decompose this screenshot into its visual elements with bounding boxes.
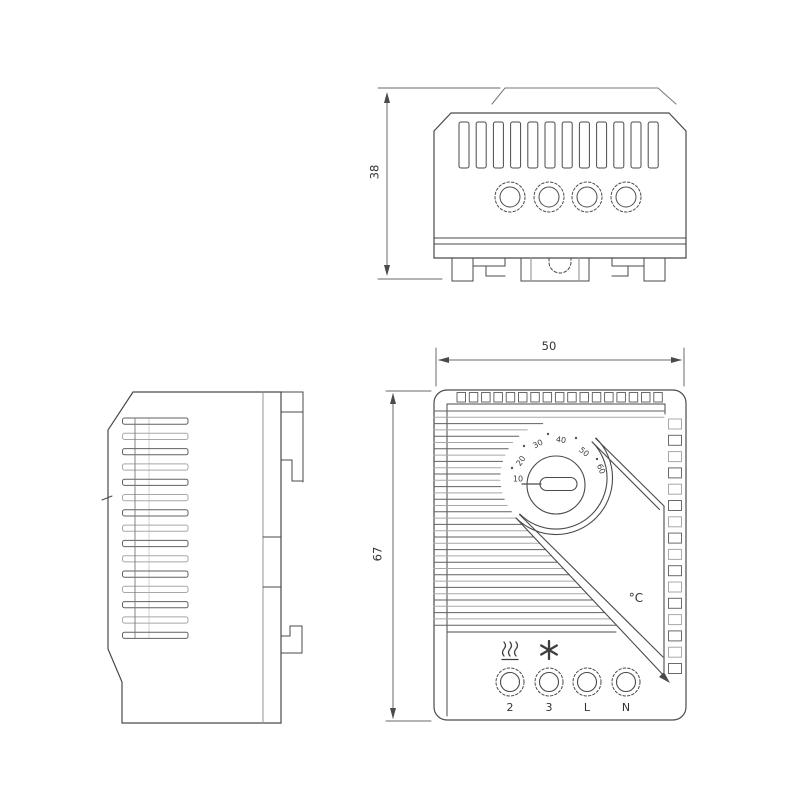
terminal-screw [539,187,559,207]
celsius-unit-label: °C [629,591,643,605]
right-vent-slot [669,517,682,527]
comb-slot [531,393,540,403]
terminal-screw [577,187,597,207]
side-vent-slot [123,617,189,623]
dial-bezel-inner-arc [520,442,607,529]
left-foot [486,266,505,276]
comb-slot [592,393,601,403]
left-foot [473,258,505,266]
middle-foot-notch [549,258,571,273]
comb-slot [617,393,626,403]
dimension-arrow-icon [390,708,396,719]
right-foot [612,258,644,266]
back-plate-outline [492,88,676,104]
comb-slot [482,393,491,403]
top-vent-slot [528,122,538,168]
side-vent-slot [123,540,189,546]
top-vent-slot [545,122,555,168]
top-vent-slot [511,122,521,168]
dial-pointer-handle[interactable] [540,478,577,491]
dial-scale-dot [596,458,598,460]
side-vent-slot [123,495,189,501]
side-vent-slot [123,632,189,638]
right-vent-slot [669,468,682,478]
top-vent-slot [648,122,658,168]
front-right-vent-slots [669,419,682,674]
left-notch [102,496,112,500]
terminal-screw[interactable] [578,673,597,692]
dial-bezel-lower-edge [516,518,666,678]
side-vent-slot [123,556,189,562]
dimension-arrow-icon [438,357,449,363]
top-vent-slot [476,122,486,168]
side-vent-slot [123,586,189,592]
right-vent-slot [669,435,682,445]
din-clip-top [281,392,303,482]
right-foot [612,266,628,276]
right-vent-slot [669,452,682,462]
comb-slot [642,393,651,403]
din-clip-bottom [281,626,302,653]
dimension-arrow-icon [390,393,396,404]
top-view-vent-slots [459,122,658,168]
right-vent-slot [669,549,682,559]
right-foot [644,258,665,281]
top-vent-slot [493,122,503,168]
comb-slot [629,393,638,403]
height-dimension-label: 67 [371,547,385,562]
terminal-screw [500,187,520,207]
dial-scale-dot [575,437,577,439]
side-vent-slot [123,525,189,531]
side-view-body-outline [108,392,281,723]
side-vent-slot [123,602,189,608]
top-view-depth-dimension [378,88,500,279]
fan-symbol-icon [541,641,557,659]
top-vent-slot [579,122,589,168]
terminal-label: N [622,701,630,714]
comb-slot [543,393,552,403]
dimension-arrow-icon [384,92,390,103]
dial-bezel-outer-arc [516,438,613,535]
top-vent-slot [614,122,624,168]
side-vent-slot [123,571,189,577]
dial-scale-dot [523,445,525,447]
front-view-width-dimension [436,348,684,386]
comb-slot [555,393,564,403]
technical-drawing-page: 38 [0,0,800,800]
side-view-vent-slots [123,418,189,638]
dimension-arrow-icon [671,357,682,363]
width-dimension-label: 50 [542,339,557,353]
top-vent-slot [631,122,641,168]
terminal-screw[interactable] [617,673,636,692]
comb-slot [605,393,614,403]
comb-slot [568,393,577,403]
side-vent-slot [123,433,189,439]
right-vent-slot [669,484,682,494]
front-view-terminals: 23LN [496,668,640,714]
dial-bezel [516,438,670,683]
top-vent-slot [562,122,572,168]
right-vent-slot [669,615,682,625]
comb-slot [494,393,503,403]
right-vent-slot [669,566,682,576]
inner-panel-edge [447,404,665,414]
right-vent-slot [669,419,682,429]
mounting-feet [452,258,665,281]
top-view-terminals [495,182,641,212]
side-vent-slot [123,479,189,485]
comb-slot [469,393,478,403]
terminal-screw[interactable] [540,673,559,692]
dial-scale-label: 10 [513,475,523,484]
front-view-height-dimension [386,391,431,721]
right-vent-slot [669,598,682,608]
left-foot [452,258,473,281]
top-vent-slot [459,122,469,168]
comb-slot [654,393,663,403]
comb-slot [519,393,528,403]
top-view: 38 [368,88,687,281]
side-vent-slot [123,464,189,470]
right-vent-slot [669,582,682,592]
dial-scale-dot [547,433,549,435]
terminal-label: 2 [507,701,514,714]
drawing-canvas: 38 [0,0,800,800]
side-vent-slot [123,418,189,424]
side-vent-slot [123,510,189,516]
terminal-label: L [584,701,591,714]
dial-bezel-lower-edge-inner [520,515,664,658]
side-vent-slot [123,449,189,455]
right-vent-slot [669,647,682,657]
dial-scale-dot [511,467,513,469]
right-vent-slot [669,533,682,543]
comb-slot [506,393,515,403]
dial-knob[interactable] [527,456,585,514]
terminal-label: 3 [546,701,553,714]
comb-slot [457,393,466,403]
top-vent-slot [597,122,607,168]
dial-scale-label: 20 [514,454,527,468]
heating-symbol-icon [502,642,518,660]
right-vent-slot [669,631,682,641]
comb-slot [580,393,589,403]
terminal-screw [616,187,636,207]
dial-scale-label: 30 [531,438,544,451]
terminal-screw[interactable] [501,673,520,692]
dial-scale-label: 40 [555,435,566,445]
dimension-arrow-icon [384,265,390,276]
right-vent-slot [669,664,682,674]
depth-dimension-label: 38 [368,165,382,180]
front-top-comb-slots [457,393,662,403]
front-view: 50 67 [371,339,687,721]
side-view [102,392,303,723]
dial-scale-label: 50 [577,445,591,458]
right-vent-slot [669,501,682,511]
